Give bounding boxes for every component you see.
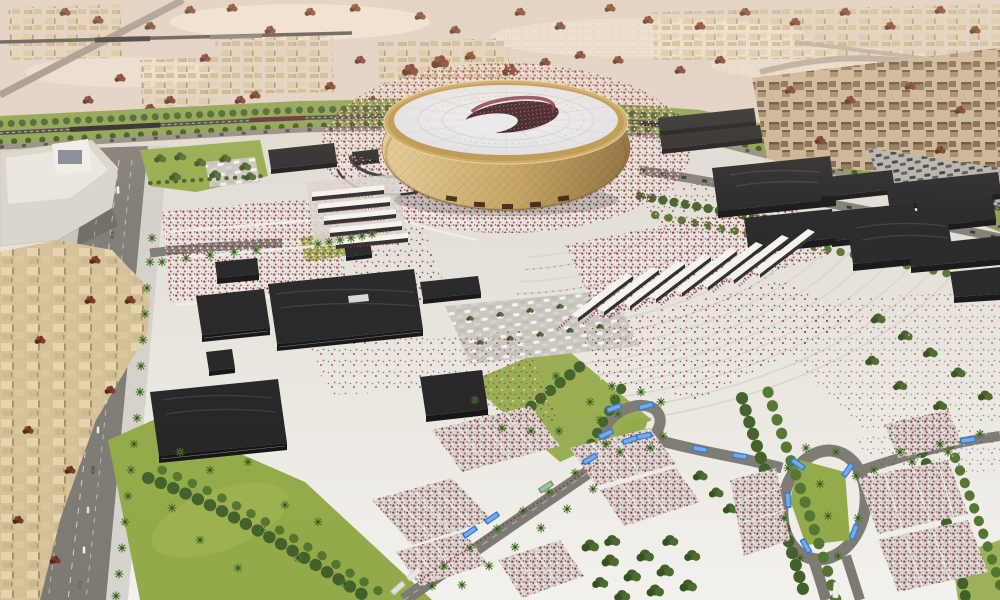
- light-overlay: [0, 0, 1000, 600]
- aerial-render: [0, 0, 1000, 600]
- stadium-aerial-scene: [0, 0, 1000, 600]
